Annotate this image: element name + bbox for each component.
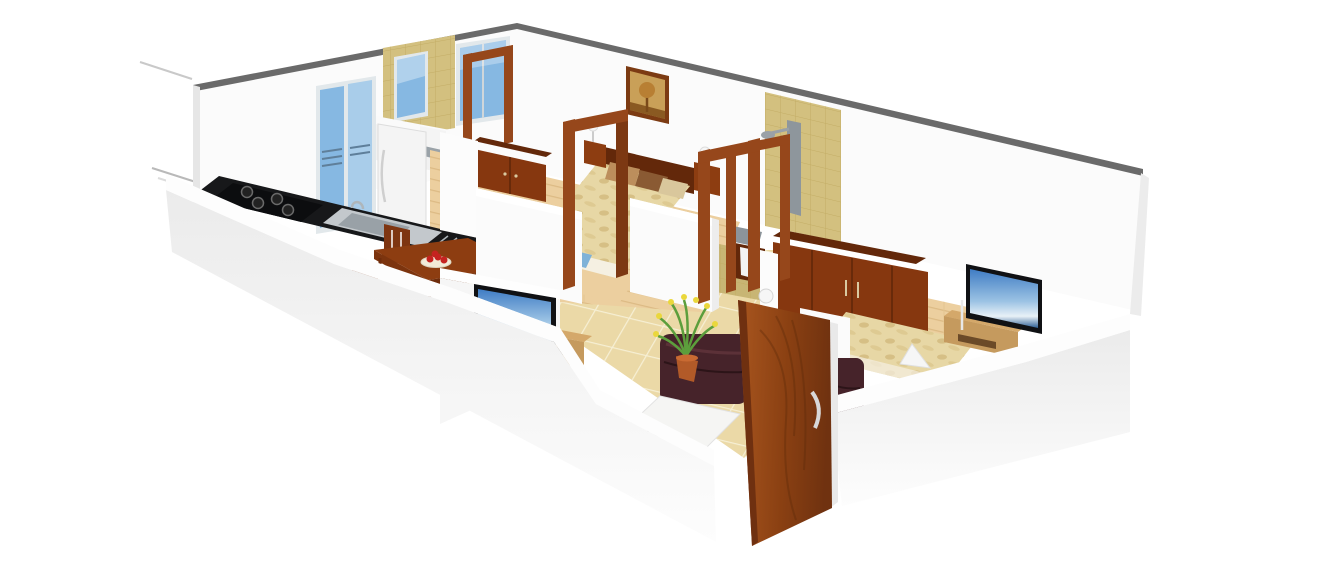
- wall-painting: [626, 66, 669, 124]
- half-wall: [440, 132, 478, 238]
- painting-tree-canopy: [639, 82, 655, 98]
- refrigerator: [378, 124, 426, 226]
- shower-tile-grid: [765, 92, 841, 242]
- floor-plan-figure: [0, 0, 1336, 585]
- door-knob: [759, 289, 773, 303]
- wardrobe1-handle: [514, 174, 517, 177]
- main-entrance-door: [738, 300, 838, 546]
- bathroom-2-wall: [761, 92, 841, 242]
- half-wall-side: [712, 218, 719, 312]
- wardrobe1-handle: [503, 172, 506, 175]
- pot-rim: [676, 355, 698, 362]
- floor-plan-canvas: [0, 0, 1336, 585]
- glass-door-pane: [348, 80, 372, 221]
